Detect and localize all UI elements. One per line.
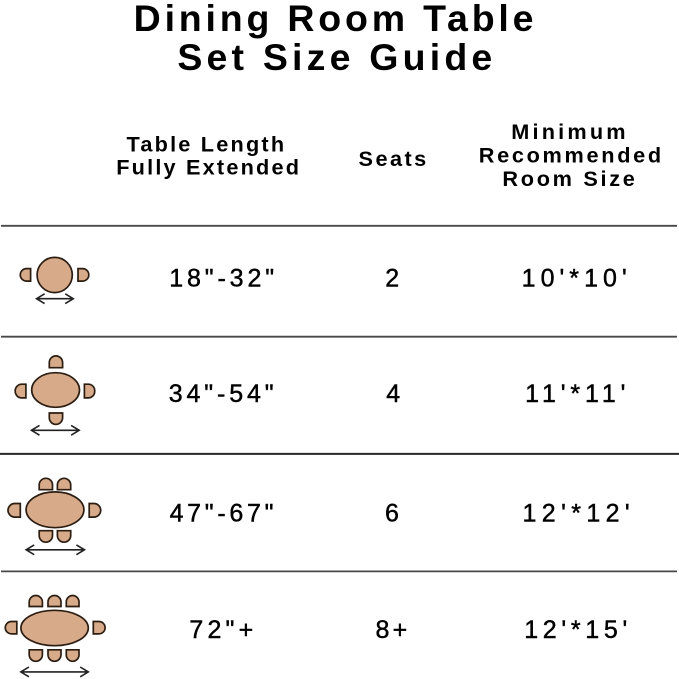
svg-text:2: 2	[385, 265, 402, 293]
svg-text:Seats: Seats	[359, 146, 429, 171]
svg-text:18"-32": 18"-32"	[169, 265, 278, 293]
svg-text:Recommended: Recommended	[479, 143, 664, 168]
svg-text:Minimum: Minimum	[511, 119, 629, 144]
svg-text:Room Size: Room Size	[502, 166, 637, 191]
svg-text:4: 4	[386, 380, 403, 408]
svg-text:10'*10': 10'*10'	[522, 265, 632, 293]
svg-text:Table Length: Table Length	[127, 132, 287, 157]
svg-text:Set Size Guide: Set Size Guide	[177, 36, 496, 78]
svg-text:6: 6	[385, 500, 402, 528]
svg-text:47"-67": 47"-67"	[170, 500, 278, 528]
svg-text:12'*12': 12'*12'	[523, 500, 636, 528]
svg-text:8+: 8+	[376, 616, 411, 644]
svg-text:Fully Extended: Fully Extended	[116, 155, 301, 180]
svg-text:12'*15': 12'*15'	[524, 616, 632, 644]
svg-text:11'*11': 11'*11'	[525, 380, 630, 408]
svg-text:34"-54": 34"-54"	[169, 380, 278, 408]
svg-text:Dining Room Table: Dining Room Table	[134, 0, 538, 39]
svg-text:72"+: 72"+	[189, 616, 257, 644]
